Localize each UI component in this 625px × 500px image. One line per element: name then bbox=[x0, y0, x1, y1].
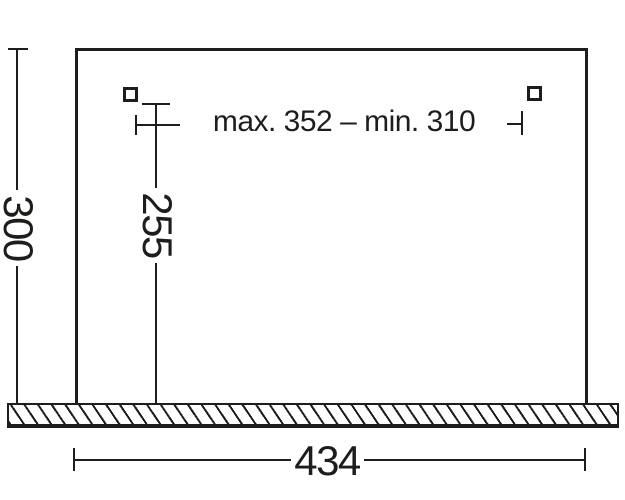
hole-spacing-line-left bbox=[135, 124, 180, 126]
dimension-255-line-lower bbox=[155, 263, 157, 403]
dimension-255-line-upper bbox=[155, 103, 157, 188]
dimension-300-line-lower bbox=[16, 266, 18, 403]
dimension-300-line-upper bbox=[16, 48, 18, 190]
hole-spacing-label: max. 352 – min. 310 bbox=[213, 107, 475, 137]
wall-outline-left-edge bbox=[75, 48, 78, 403]
mounting-hole-left bbox=[123, 87, 138, 102]
floor-hatch-strip bbox=[7, 403, 619, 428]
wall-outline-right-edge bbox=[585, 48, 588, 403]
dimension-434-right-tick bbox=[584, 448, 586, 471]
dimension-434-line-right bbox=[364, 459, 586, 461]
dimension-300-label: 300 bbox=[0, 195, 39, 261]
dimension-434-label: 434 bbox=[294, 440, 360, 482]
mounting-hole-right bbox=[527, 86, 542, 101]
wall-outline-top-edge bbox=[75, 48, 588, 51]
dimension-300-top-tick bbox=[8, 48, 28, 50]
dimension-255-label: 255 bbox=[136, 192, 178, 258]
dimension-434-line-left bbox=[73, 459, 291, 461]
mounting-dimension-diagram: 300 255 max. 352 – min. 310 434 bbox=[0, 0, 625, 500]
hole-spacing-right-tick bbox=[521, 111, 523, 135]
